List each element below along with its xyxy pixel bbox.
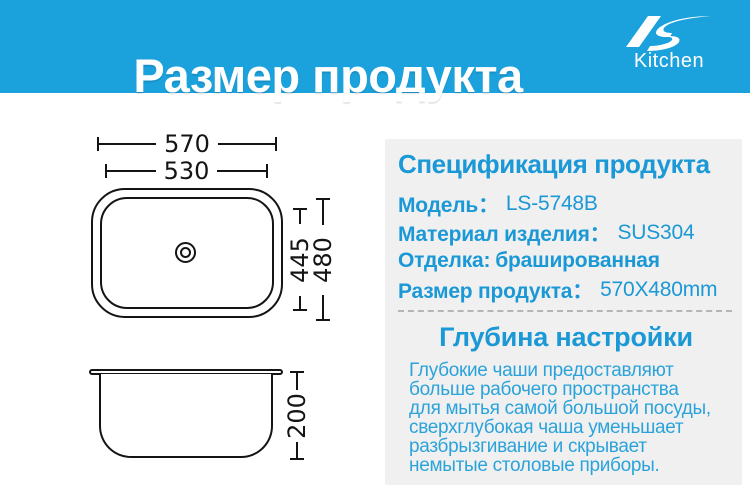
dim-line <box>217 170 266 172</box>
ls-swoosh-icon <box>625 12 713 52</box>
dim-label-200: 200 <box>284 390 310 442</box>
spec-label: Отделка: <box>398 249 490 273</box>
dim-inner-width: 530 <box>105 158 268 184</box>
spec-value: SUS304 <box>617 221 694 245</box>
dim-line <box>322 295 324 320</box>
depth-description-line: больше рабочего пространства <box>409 380 734 399</box>
spec-row-size: Размер продукта： 570X480mm <box>398 276 734 305</box>
depth-description-line: сверхглубокая чаша уменьшает <box>409 418 734 437</box>
depth-description-line: немытые столовые приборы. <box>409 456 734 475</box>
depth-description-line: для мытья самой большой посуды, <box>409 399 734 418</box>
dim-line <box>299 210 301 224</box>
dim-label-570: 570 <box>156 131 218 157</box>
dim-label-480: 480 <box>310 225 336 295</box>
spec-value: LS-5748B <box>506 192 598 216</box>
depth-section-title: Глубина настройки <box>398 322 734 353</box>
dim-line <box>296 373 298 390</box>
drain-inner-circle <box>180 247 191 258</box>
dim-tick <box>316 319 330 321</box>
brand-name: Kitchen <box>622 50 716 73</box>
spec-panel: Спецификация продукта Модель： LS-5748B М… <box>385 139 742 485</box>
spec-label: Модель： <box>398 189 499 219</box>
depth-description-line: Глубокие чаши предоставляют <box>409 361 734 380</box>
dim-line <box>218 143 275 145</box>
dim-tick <box>275 137 277 151</box>
spec-value: 570X480mm <box>600 278 717 302</box>
dim-line <box>322 200 324 225</box>
depth-description: Глубокие чаши предоставляют больше рабоч… <box>398 361 734 475</box>
dim-line <box>107 170 156 172</box>
dim-tick <box>266 164 268 178</box>
dim-outer-width: 570 <box>97 131 277 157</box>
product-size-sheet: Размер продукта Kitchen 570 530 <box>0 0 750 503</box>
spec-label: Размер продукта： <box>398 275 593 305</box>
dim-tick <box>293 309 307 311</box>
dim-line <box>99 143 156 145</box>
depth-description-line: разбрызгивание и скрывает <box>409 437 734 456</box>
page-title: Размер продукта <box>103 52 553 99</box>
spec-row-finish: Отделка: брашированная <box>398 247 734 276</box>
spec-label: Материал изделия： <box>398 218 610 248</box>
brand-logo: Kitchen <box>622 12 716 73</box>
dashed-divider <box>398 310 732 312</box>
spec-row-model: Модель： LS-5748B <box>398 190 734 219</box>
spec-title: Спецификация продукта <box>398 149 734 180</box>
spec-row-material: Материал изделия： SUS304 <box>398 219 734 248</box>
sink-side-view-bowl <box>99 374 273 458</box>
dim-tick <box>290 458 304 460</box>
spec-value: брашированная <box>495 249 660 273</box>
header-bar: Размер продукта Kitchen <box>0 0 750 93</box>
dim-line <box>299 296 301 310</box>
dim-label-530: 530 <box>156 158 218 184</box>
dim-depth: 200 <box>284 371 310 460</box>
dim-line <box>296 442 298 459</box>
dim-outer-height: 480 <box>310 198 336 321</box>
